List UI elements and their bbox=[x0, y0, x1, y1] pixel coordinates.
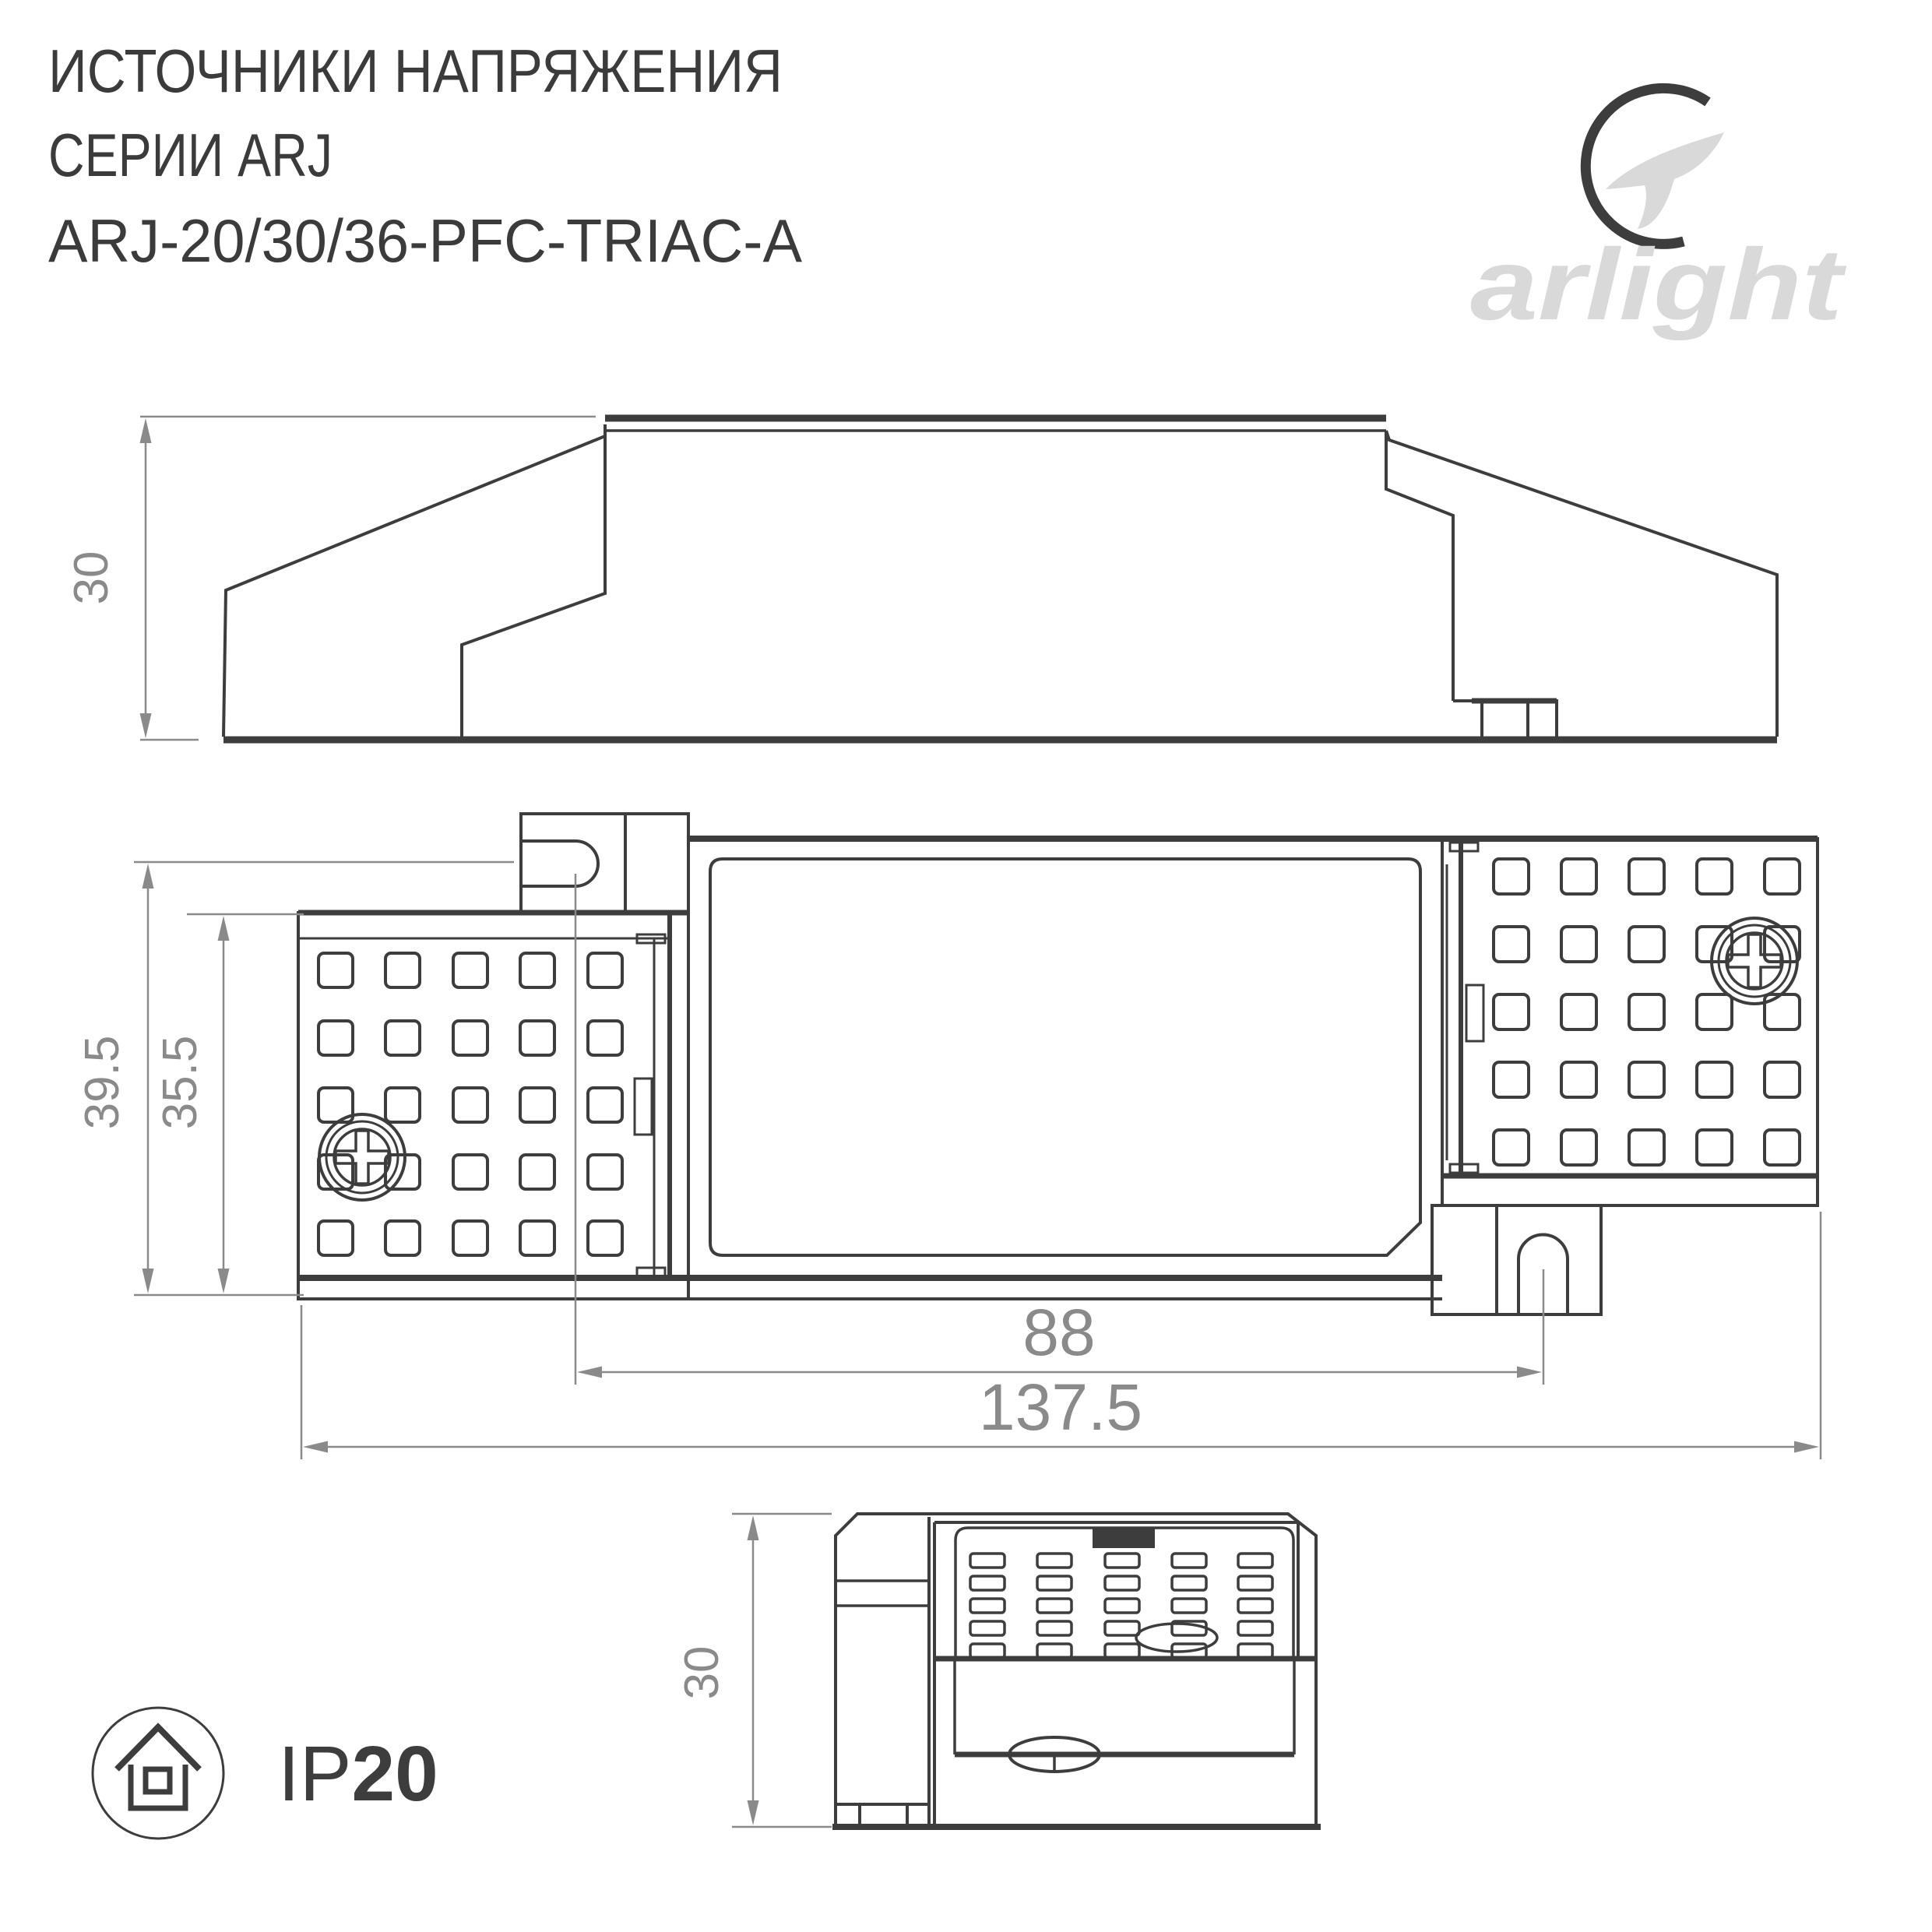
dim-inner-height-label: 35.5 bbox=[153, 1036, 207, 1130]
logo-leaf-icon bbox=[1606, 132, 1724, 229]
wire-connector-block bbox=[1093, 1528, 1155, 1548]
ip-rating-badge: IP20 bbox=[93, 1708, 438, 1839]
house-icon bbox=[117, 1727, 199, 1808]
title-line-3: ARJ-20/30/36-PFC-TRIAC-A bbox=[48, 206, 802, 275]
page-title: ИСТОЧНИКИ НАПРЯЖЕНИЯ СЕРИИ ARJ ARJ-20/30… bbox=[48, 37, 802, 275]
drawing-page: ИСТОЧНИКИ НАПРЯЖЕНИЯ СЕРИИ ARJ ARJ-20/30… bbox=[0, 0, 1932, 1932]
vent-grid-end bbox=[970, 1554, 1272, 1658]
top-view: 39.5 35.5 88 137.5 bbox=[76, 814, 1821, 1459]
side-view: 30 bbox=[65, 417, 1777, 740]
ip-value: 20 bbox=[351, 1730, 438, 1818]
dim-overall-height-label: 39.5 bbox=[76, 1036, 129, 1130]
dim-end-height: 30 bbox=[675, 1514, 832, 1827]
mounting-ear-bottom-right bbox=[1432, 1205, 1601, 1314]
dim-mount-spacing-label: 88 bbox=[1022, 1296, 1095, 1369]
dim-side-height: 30 bbox=[65, 417, 596, 740]
mounting-slot-top-left bbox=[521, 841, 598, 886]
vent-grid-left bbox=[318, 953, 622, 1255]
side-view-outline bbox=[223, 418, 1777, 740]
end-view: 30 bbox=[675, 1514, 1321, 1827]
knockout-oval-upper bbox=[1136, 1624, 1217, 1652]
ip-prefix: IP bbox=[278, 1730, 351, 1818]
dim-overall-length-label: 137.5 bbox=[979, 1371, 1142, 1444]
dim-end-height-label: 30 bbox=[675, 1646, 729, 1700]
dim-inner-height: 35.5 bbox=[153, 914, 304, 1293]
dim-overall-height: 39.5 bbox=[76, 862, 514, 1295]
ip-rating-text: IP20 bbox=[278, 1730, 438, 1818]
body-inner-panel bbox=[710, 859, 1420, 1255]
arlight-logo: arlight bbox=[1470, 88, 1847, 341]
title-line-2: СЕРИИ ARJ bbox=[48, 121, 333, 189]
phillips-screw-left bbox=[319, 1114, 405, 1200]
dim-side-height-label: 30 bbox=[65, 551, 118, 605]
end-view-outline bbox=[832, 1514, 1321, 1827]
title-line-1: ИСТОЧНИКИ НАПРЯЖЕНИЯ bbox=[48, 37, 783, 105]
logo-brand-text: arlight bbox=[1470, 227, 1847, 341]
central-body bbox=[298, 839, 1818, 1299]
mounting-ear-top-left bbox=[521, 814, 688, 912]
technical-drawing: ИСТОЧНИКИ НАПРЯЖЕНИЯ СЕРИИ ARJ ARJ-20/30… bbox=[0, 0, 1932, 1932]
vent-grid-right bbox=[1494, 859, 1800, 1165]
end-cap-left bbox=[298, 913, 688, 1299]
end-cap-right bbox=[1442, 839, 1818, 1205]
dim-mount-spacing: 88 bbox=[575, 874, 1543, 1385]
